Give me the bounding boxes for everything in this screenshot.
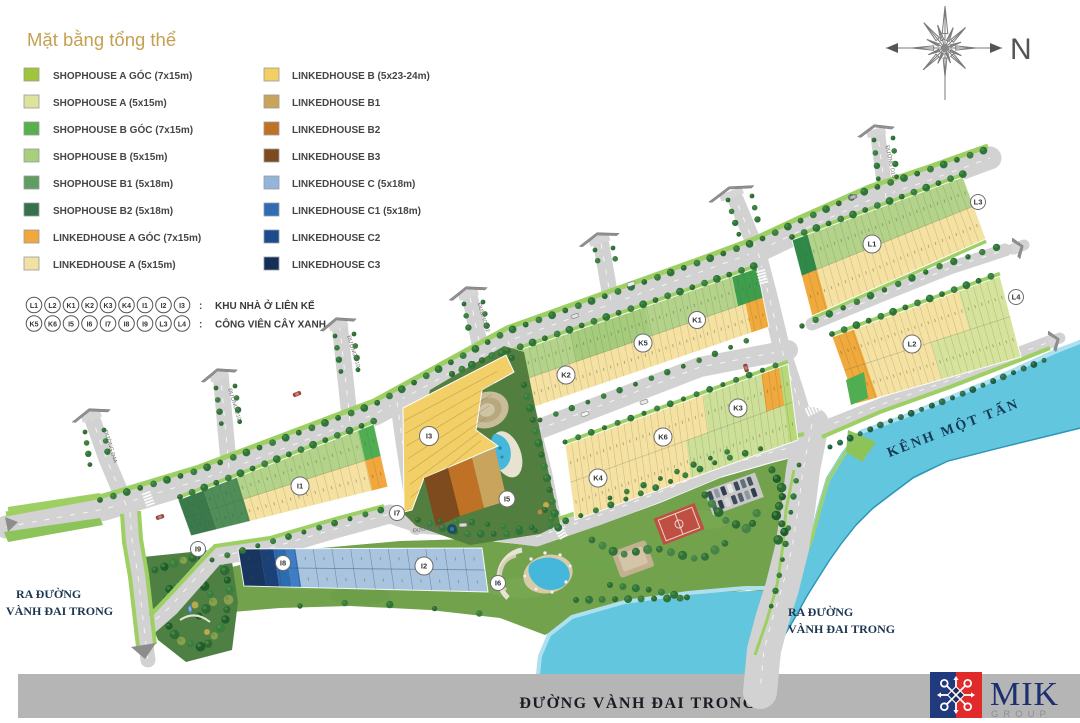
svg-text:I7: I7 xyxy=(105,321,111,328)
svg-text:N: N xyxy=(1010,33,1032,66)
svg-text:LINKEDHOUSE C3: LINKEDHOUSE C3 xyxy=(292,260,381,271)
svg-text:ĐƯỜNG VÀNH ĐAI TRONG: ĐƯỜNG VÀNH ĐAI TRONG xyxy=(519,693,756,712)
svg-text:LINKEDHOUSE A GÓC (7x15m): LINKEDHOUSE A GÓC (7x15m) xyxy=(53,231,201,244)
svg-text:K5: K5 xyxy=(30,321,39,328)
svg-text:SHOPHOUSE B GÓC (7x15m): SHOPHOUSE B GÓC (7x15m) xyxy=(53,123,193,136)
svg-text:LINKEDHOUSE A (5x15m): LINKEDHOUSE A (5x15m) xyxy=(53,260,176,271)
svg-text::: : xyxy=(199,320,202,331)
svg-text:LINKEDHOUSE C2: LINKEDHOUSE C2 xyxy=(292,233,381,244)
svg-text:LINKEDHOUSE B1: LINKEDHOUSE B1 xyxy=(292,98,381,109)
svg-text:LINKEDHOUSE C (5x18m): LINKEDHOUSE C (5x18m) xyxy=(292,179,415,190)
svg-text:K4: K4 xyxy=(593,474,603,483)
svg-text:L2: L2 xyxy=(48,303,56,310)
svg-text:K4: K4 xyxy=(122,303,131,310)
svg-text:I7: I7 xyxy=(394,509,400,518)
svg-text:L1: L1 xyxy=(868,240,877,249)
svg-text:K3: K3 xyxy=(104,303,113,310)
svg-text::: : xyxy=(199,301,202,312)
svg-text:GROUP: GROUP xyxy=(991,709,1051,718)
svg-text:I3: I3 xyxy=(426,432,432,441)
svg-text:LINKEDHOUSE B2: LINKEDHOUSE B2 xyxy=(292,125,381,136)
svg-text:SHOPHOUSE A GÓC (7x15m): SHOPHOUSE A GÓC (7x15m) xyxy=(53,69,192,82)
svg-text:Mặt bằng tổng thể: Mặt bằng tổng thể xyxy=(27,29,176,50)
svg-text:LINKEDHOUSE C1 (5x18m): LINKEDHOUSE C1 (5x18m) xyxy=(292,206,421,217)
svg-text:L4: L4 xyxy=(1012,293,1022,302)
svg-text:I1: I1 xyxy=(297,482,303,491)
svg-text:L3: L3 xyxy=(974,198,983,207)
svg-text:VÀNH ĐAI TRONG: VÀNH ĐAI TRONG xyxy=(788,622,895,636)
svg-text:I5: I5 xyxy=(68,321,74,328)
svg-text:SHOPHOUSE B2 (5x18m): SHOPHOUSE B2 (5x18m) xyxy=(53,206,173,217)
svg-text:L4: L4 xyxy=(178,321,186,328)
svg-text:RA ĐƯỜNG: RA ĐƯỜNG xyxy=(788,605,853,619)
svg-text:SHOPHOUSE A (5x15m): SHOPHOUSE A (5x15m) xyxy=(53,98,167,109)
svg-text:I2: I2 xyxy=(421,562,427,571)
svg-text:I6: I6 xyxy=(495,579,501,588)
svg-text:K3: K3 xyxy=(733,404,743,413)
svg-text:LINKEDHOUSE B3: LINKEDHOUSE B3 xyxy=(292,152,381,163)
svg-text:LINKEDHOUSE B (5x23-24m): LINKEDHOUSE B (5x23-24m) xyxy=(292,71,430,82)
svg-text:K1: K1 xyxy=(67,303,76,310)
svg-text:I6: I6 xyxy=(87,321,93,328)
svg-text:I2: I2 xyxy=(161,303,167,310)
svg-text:CÔNG VIÊN CÂY XANH: CÔNG VIÊN CÂY XANH xyxy=(215,318,326,331)
svg-text:I9: I9 xyxy=(142,321,148,328)
svg-text:K6: K6 xyxy=(658,433,668,442)
svg-text:I8: I8 xyxy=(280,559,286,568)
svg-text:SHOPHOUSE B (5x15m): SHOPHOUSE B (5x15m) xyxy=(53,152,167,163)
svg-text:MIK: MIK xyxy=(990,676,1059,713)
svg-text:K5: K5 xyxy=(638,339,648,348)
svg-text:K2: K2 xyxy=(85,303,94,310)
svg-text:RA ĐƯỜNG: RA ĐƯỜNG xyxy=(16,587,81,601)
svg-text:I1: I1 xyxy=(142,303,148,310)
svg-text:K1: K1 xyxy=(692,316,702,325)
svg-text:I5: I5 xyxy=(504,495,510,504)
svg-text:K2: K2 xyxy=(561,371,571,380)
svg-text:L2: L2 xyxy=(908,340,917,349)
svg-text:L3: L3 xyxy=(159,321,167,328)
svg-text:KHU NHÀ Ở LIÊN KẾ: KHU NHÀ Ở LIÊN KẾ xyxy=(215,299,315,312)
svg-text:K6: K6 xyxy=(48,321,57,328)
svg-text:I8: I8 xyxy=(124,321,130,328)
svg-text:SHOPHOUSE B1 (5x18m): SHOPHOUSE B1 (5x18m) xyxy=(53,179,173,190)
svg-text:I3: I3 xyxy=(179,303,185,310)
svg-text:VÀNH ĐAI TRONG: VÀNH ĐAI TRONG xyxy=(6,604,113,618)
svg-text:I9: I9 xyxy=(195,545,201,554)
svg-text:L1: L1 xyxy=(30,303,38,310)
